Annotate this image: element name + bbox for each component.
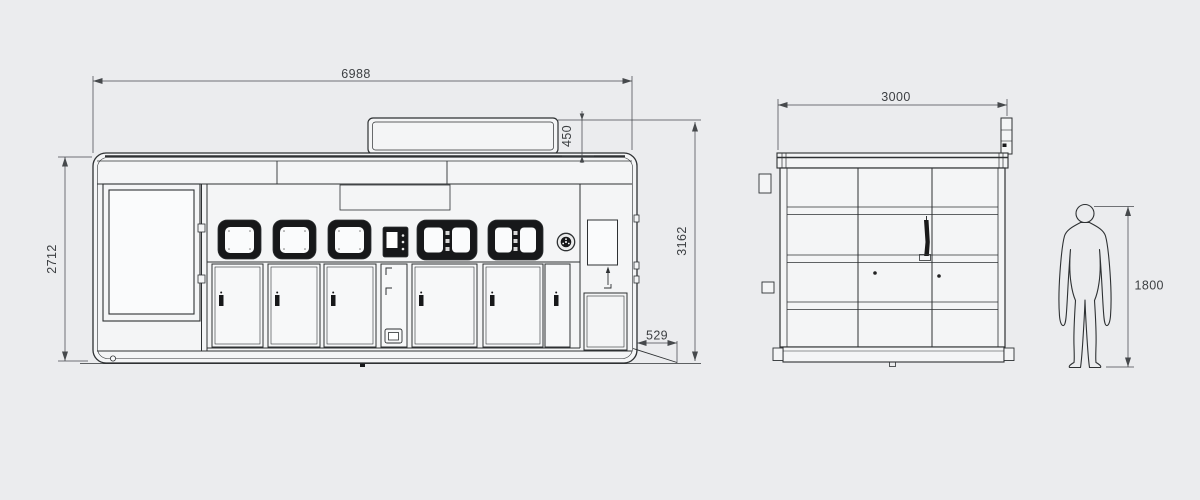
side-view (759, 118, 1014, 367)
locker-door (212, 264, 263, 347)
locker-door (545, 264, 570, 347)
left-window (103, 184, 200, 321)
dim-label-depth: 3000 (881, 90, 910, 104)
double-window (488, 220, 543, 260)
locker-door (412, 264, 477, 347)
side-bracket (759, 174, 771, 193)
side-body (759, 168, 1005, 347)
end-panel (588, 220, 618, 265)
dim-ramp-depth: 529 (637, 329, 677, 364)
dim-label-human-height: 1800 (1135, 279, 1164, 293)
dim-body-height: 2712 (45, 157, 92, 361)
side-top-rail (777, 153, 1008, 168)
roof-sign (368, 118, 558, 154)
double-window (417, 220, 477, 260)
side-bracket (762, 282, 774, 293)
porthole-window (218, 220, 261, 259)
door-knob (937, 274, 941, 278)
dim-label-sign-height: 450 (560, 125, 574, 147)
human-head (1076, 205, 1094, 223)
dim-label-overall-height: 3162 (675, 226, 689, 255)
dim-label-width: 6988 (341, 67, 370, 81)
side-sign-edge (1001, 118, 1012, 154)
locker-door (268, 264, 320, 347)
dim-human-height: 1800 (1094, 207, 1164, 368)
door-handle (490, 295, 495, 306)
human-figure (1059, 205, 1111, 368)
front-view (80, 118, 701, 367)
door-handle (554, 295, 559, 306)
door-knob (873, 271, 877, 275)
technical-drawing-canvas: 6988 2712 450 3162 529 (0, 0, 1200, 500)
porthole-window (273, 220, 316, 259)
dim-depth: 3000 (778, 90, 1007, 150)
side-base (773, 347, 1014, 367)
door-handle (219, 295, 224, 306)
side-dimensions: 3000 (778, 90, 1007, 150)
control-panel (383, 227, 408, 257)
control-screen (387, 232, 398, 248)
end-door (584, 293, 627, 350)
porthole-window (328, 220, 371, 259)
ramp (633, 349, 677, 363)
drain-fitting (890, 362, 896, 367)
dim-label-body-height: 2712 (45, 244, 59, 273)
drawing-svg: 6988 2712 450 3162 529 (0, 0, 1200, 500)
human-body-outline (1059, 223, 1111, 368)
door-handle (275, 295, 280, 306)
service-door (381, 264, 407, 347)
locker-door (324, 264, 376, 347)
door-handle (331, 295, 336, 306)
dim-label-ramp: 529 (646, 329, 668, 343)
caster-wheel (110, 356, 115, 361)
locker-door (483, 264, 543, 347)
door-handle (419, 295, 424, 306)
vent-fan-icon (557, 233, 574, 250)
human-dimensions: 1800 (1094, 207, 1164, 368)
